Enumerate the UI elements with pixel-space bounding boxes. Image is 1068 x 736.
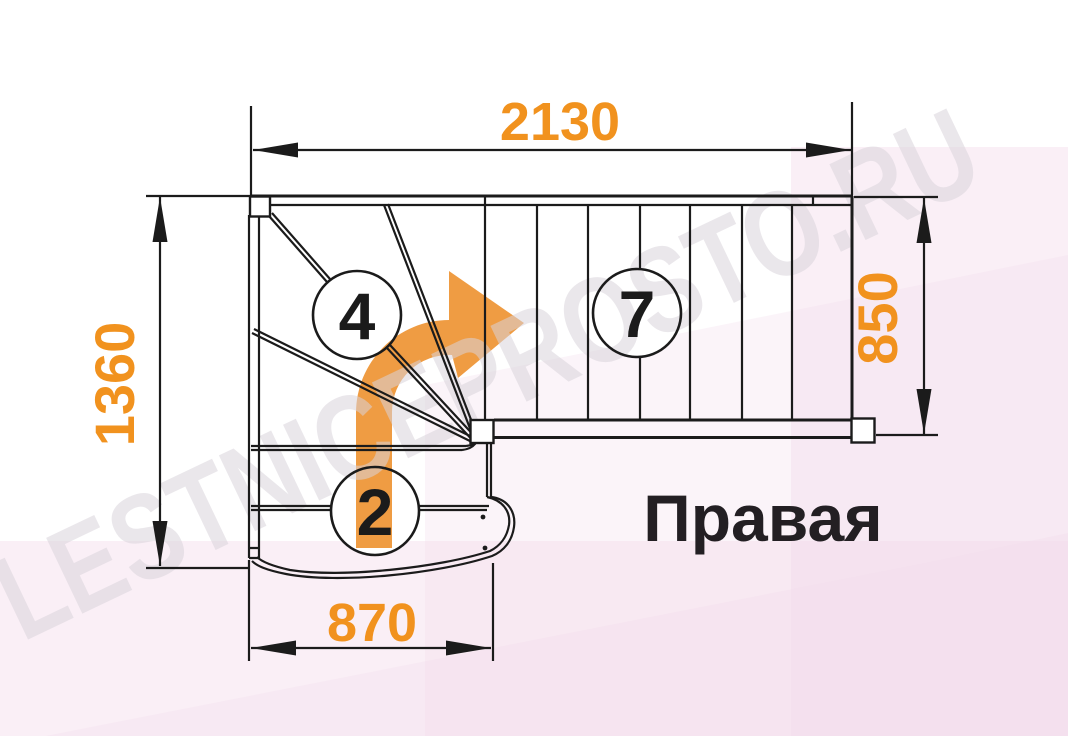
dimension-top-value: 2130	[500, 92, 620, 152]
upper-flight-step-number: 7	[619, 277, 656, 351]
center-post	[471, 420, 494, 443]
dimension-top-arrow-left	[253, 143, 298, 158]
baluster-dot-2	[483, 546, 488, 551]
winder-step-number: 4	[339, 279, 376, 353]
baluster-dot-1	[481, 515, 486, 520]
dimension-left-arrow-top	[153, 197, 168, 242]
lower-flight-step-number: 2	[357, 475, 394, 549]
dimension-bottom-value: 870	[327, 593, 417, 653]
dimension-right-value: 850	[846, 271, 909, 364]
end-post	[852, 419, 875, 443]
orientation-label: Правая	[643, 481, 882, 555]
staircase-plan-drawing: LESTNICEPROSTO.RU	[0, 0, 1068, 736]
top-left-post	[250, 197, 270, 217]
dimension-left-value: 1360	[83, 322, 146, 447]
